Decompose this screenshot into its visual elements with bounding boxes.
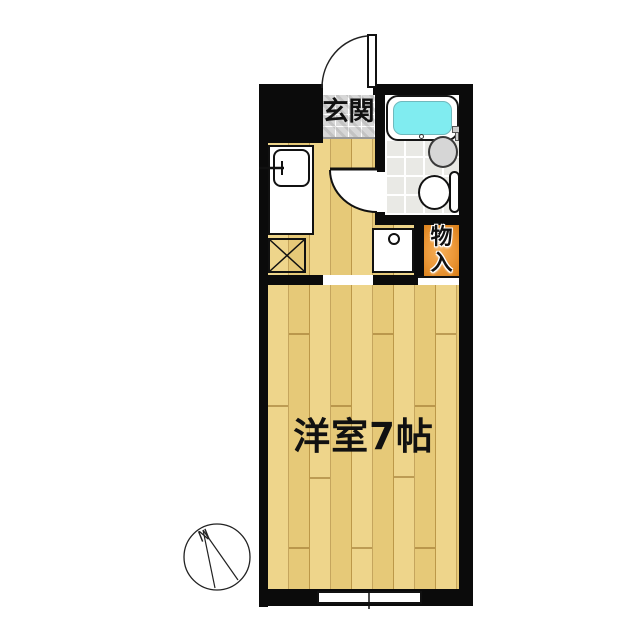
- wall-bath-bottom: [375, 215, 473, 225]
- floor-seam: [415, 547, 435, 549]
- floor-seam: [289, 547, 309, 549]
- floor-seam: [352, 547, 372, 549]
- wash-basin: [428, 136, 458, 168]
- kitchen-sink: [273, 149, 310, 187]
- floor-seam: [436, 333, 456, 335]
- toilet-bowl: [418, 175, 451, 210]
- window: [317, 591, 422, 604]
- floor-seam: [394, 476, 414, 478]
- wall-right: [459, 84, 473, 606]
- entrance-door-opening: [322, 84, 373, 95]
- compass-needle-right: [203, 530, 238, 580]
- wall-room-top-left-segment: [259, 275, 323, 285]
- floor-seam: [415, 405, 435, 407]
- wall-left: [259, 84, 268, 607]
- washer-tap: [388, 233, 400, 245]
- storage-closet: 物 入: [424, 225, 459, 276]
- refrigerator-space: [268, 238, 306, 273]
- bathtub-drain: [419, 134, 424, 139]
- wall-storage-divider: [414, 225, 424, 276]
- bathtub-water: [393, 101, 452, 135]
- storage-label-char1: 物: [430, 227, 452, 249]
- storage-label: 物 入: [424, 225, 459, 276]
- compass-circle: [184, 524, 250, 590]
- wall-block-top-left: [259, 84, 323, 143]
- wall-room-top-mid-segment: [373, 275, 418, 285]
- main-room-label: 洋室7帖: [268, 418, 459, 455]
- compass-north-letter: N: [195, 525, 212, 546]
- compass-rose: N: [184, 524, 250, 590]
- entrance-door-leaf: [367, 34, 377, 88]
- storage-label-char2: 入: [430, 253, 452, 275]
- floor-seam: [268, 405, 288, 407]
- floor-seam: [373, 333, 393, 335]
- bathroom-door-opening: [375, 172, 385, 212]
- entrance-step-line: [322, 137, 375, 139]
- floor-seam: [331, 405, 351, 407]
- bathtub: [386, 95, 459, 141]
- floorplan-canvas: 玄関 物 入 洋室7帖: [0, 0, 640, 640]
- floor-seam: [310, 477, 330, 479]
- storage-opening: [418, 276, 459, 285]
- compass-needle-left: [203, 530, 215, 588]
- entrance-door-swing-arc: [322, 36, 367, 88]
- entrance-label: 玄関: [320, 99, 377, 125]
- room-entry-opening: [323, 275, 373, 285]
- floor-seam: [289, 333, 309, 335]
